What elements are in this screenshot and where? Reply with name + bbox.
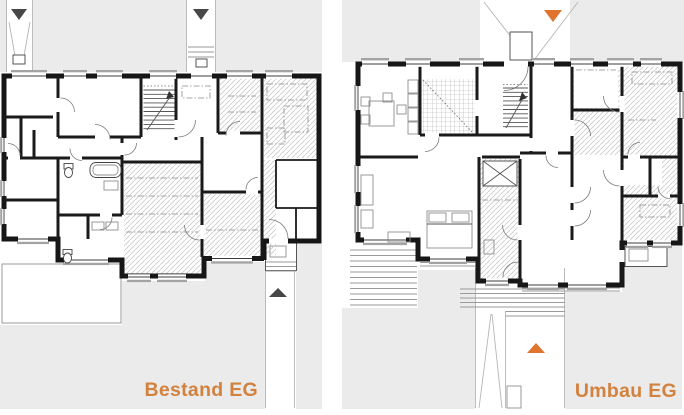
entry-marker-down-icon (193, 9, 209, 20)
dining-table (361, 93, 406, 126)
sink (104, 181, 118, 190)
entry-marker-down-icon (11, 9, 27, 20)
floor-plan-sheet: Bestand EG (0, 0, 684, 415)
entry-marker-down-icon (544, 10, 562, 22)
umbau-stair (503, 85, 528, 129)
umbau-stoop (625, 247, 667, 267)
toilet-2 (63, 250, 72, 264)
umbau-entry-walkway (484, 2, 578, 60)
umbau-plan: Umbau EG (342, 0, 684, 409)
toilet (64, 164, 73, 178)
sofa (361, 175, 410, 242)
kitchen-counter (408, 80, 418, 134)
floor-plans-image: Bestand EG (0, 0, 684, 415)
umbau-terrace-decking (350, 250, 417, 305)
shaft-x-box (483, 161, 517, 186)
bestand-stair (144, 86, 175, 130)
bestand-plan: Bestand EG (0, 0, 322, 409)
entry-marker-up-icon (269, 288, 287, 297)
entry-marker-up-icon (527, 343, 545, 353)
bed (427, 211, 472, 248)
umbau-label: Umbau EG (575, 380, 677, 402)
bestand-terrace (2, 264, 121, 323)
bestand-label: Bestand EG (144, 379, 258, 401)
